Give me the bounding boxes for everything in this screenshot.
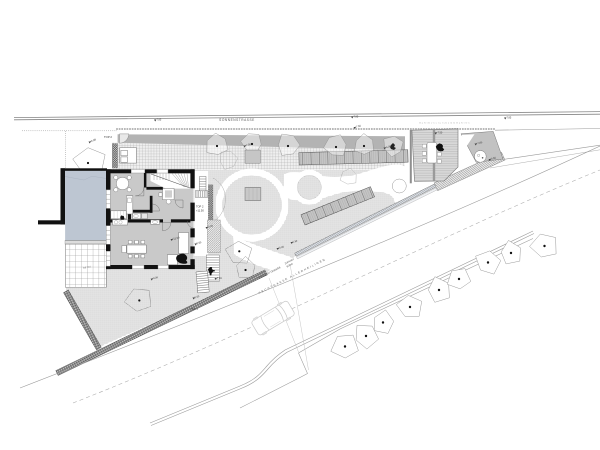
svg-text:+7.50: +7.50: [436, 132, 443, 135]
svg-text:TOP 1: TOP 1: [191, 308, 198, 311]
svg-text:-7.04: -7.04: [216, 277, 222, 280]
svg-text:TOP 2: TOP 2: [104, 135, 112, 139]
svg-text:G a S t D v n s t a l s b x m: G a S t D v n s t a l s b x m m G a S t …: [419, 122, 470, 125]
svg-text:TOP 2: TOP 2: [196, 205, 204, 209]
svg-text:+11.50: +11.50: [196, 209, 204, 213]
svg-text:SONNENSTRASSE: SONNENSTRASSE: [219, 118, 255, 122]
